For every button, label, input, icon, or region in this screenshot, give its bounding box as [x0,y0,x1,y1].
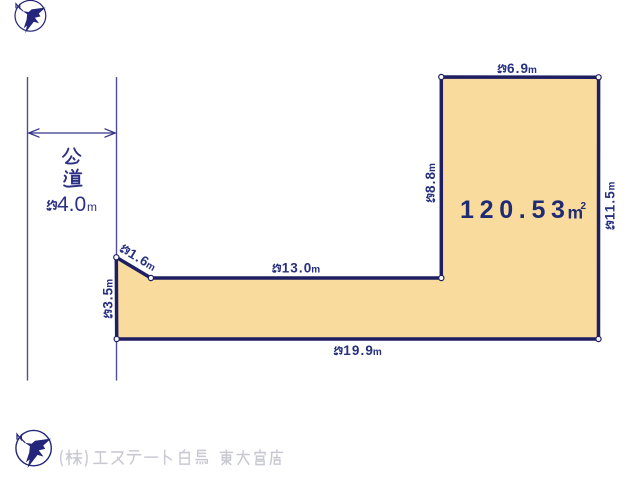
svg-text:120.53: 120.53 [460,196,571,224]
svg-text:19.9: 19.9 [343,343,374,358]
svg-text:4.0: 4.0 [57,193,86,216]
svg-text:11.5: 11.5 [602,190,617,220]
svg-text:8.8: 8.8 [423,171,438,193]
svg-text:m: m [373,347,382,358]
svg-text:6.9: 6.9 [507,61,529,76]
svg-text:2: 2 [581,201,587,212]
svg-text:m: m [606,182,617,191]
svg-text:m: m [104,279,115,288]
svg-text:m: m [528,65,537,76]
svg-text:m: m [87,200,97,214]
svg-text:3.5: 3.5 [100,287,115,309]
svg-text:m: m [427,163,438,172]
svg-text:13.0: 13.0 [282,261,313,276]
svg-text:m: m [311,265,320,276]
